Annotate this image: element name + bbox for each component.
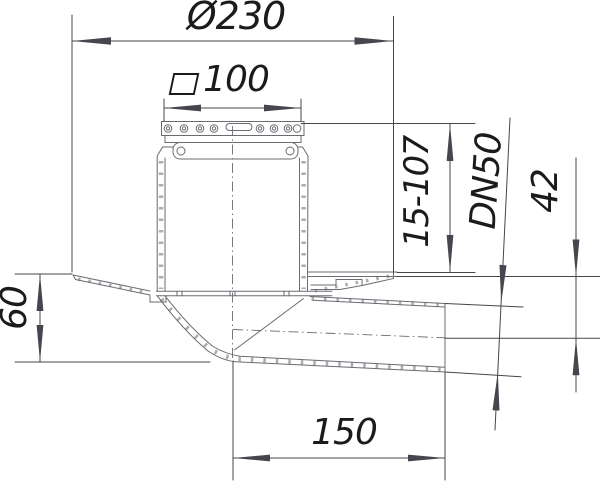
dim-label-outlet-dn: DN50: [466, 132, 509, 231]
arrow-230-right: [355, 37, 394, 44]
dim-label-outlet-axis-height: 42: [528, 169, 564, 213]
drain-body-walls: [157, 156, 333, 296]
dim-label-diameter: Ø230: [187, 0, 285, 35]
dim-label-outlet-length: 150: [311, 415, 377, 451]
flange-right: [308, 272, 397, 290]
arrow-42-bottom: [573, 338, 580, 375]
section-hatching: [78, 161, 445, 370]
square-section-icon: [169, 73, 200, 95]
arrow-15107-bottom: [447, 235, 454, 272]
dim-label-height-range: 15-107: [400, 136, 434, 247]
arrow-230-left: [72, 37, 111, 44]
arrow-150-left: [233, 455, 270, 462]
arrow-15107-top: [447, 124, 454, 161]
dim-dn50-ext-bottom: [445, 372, 521, 377]
arrow-dn50-bottom: [493, 373, 500, 411]
arrow-60-top: [37, 274, 44, 311]
arrow-100-right: [264, 105, 301, 112]
dim-label-flange-depth: 60: [0, 286, 33, 330]
part-geometry: [73, 122, 445, 373]
technical-drawing-canvas: [0, 0, 600, 482]
arrow-100-left: [164, 105, 201, 112]
arrow-60-bottom: [37, 325, 44, 362]
arrow-dn50-top: [500, 265, 507, 303]
dim-dn50-ext-top: [445, 304, 523, 308]
dim-label-square-size: 100: [203, 62, 269, 98]
arrow-42-top: [573, 240, 580, 277]
pipe-axis-centerline: [233, 330, 445, 338]
drawing-page: Ø230 100 15-107 DN50 42 60 150: [0, 0, 600, 482]
funnel-back-edge: [235, 299, 304, 351]
arrow-150-right: [408, 455, 445, 462]
